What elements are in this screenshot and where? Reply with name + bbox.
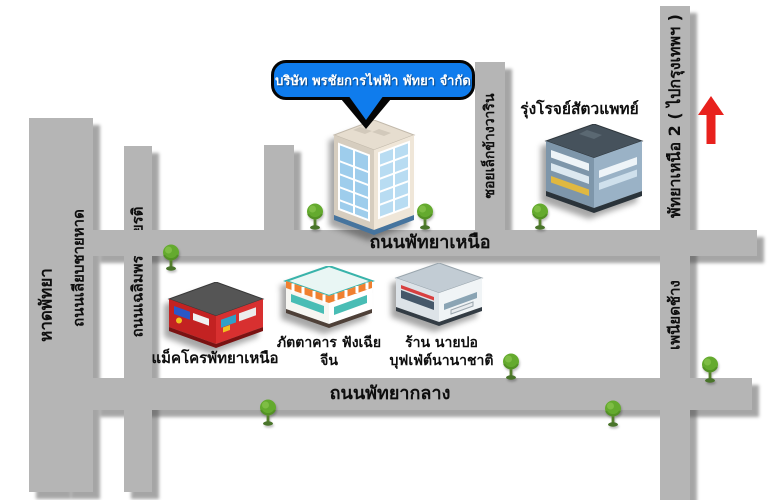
tree-icon xyxy=(161,244,181,275)
buffet-label-line1: ร้าน นายปอ xyxy=(384,334,499,352)
tree-icon xyxy=(603,400,623,431)
callout-tail xyxy=(348,95,384,120)
chaloem-phrakiat-road: ถนนเฉลิมพระเกียรติ xyxy=(124,146,152,492)
central-pattaya-road: ถนนพัทยากลาง xyxy=(93,378,752,410)
pattaya-map: หาดพัทยา ถนนเลียบชายหาด ถนนเฉลิมพระเกียร… xyxy=(0,0,784,500)
buffet-label: ร้าน นายปอ บุฟเฟ่ต์นานาชาติ xyxy=(384,334,499,370)
buffet-building-icon xyxy=(393,263,485,336)
tree-icon xyxy=(700,356,720,387)
stub-road xyxy=(264,145,294,230)
office-building-icon xyxy=(332,120,416,240)
tree-icon xyxy=(258,399,278,430)
tree-icon xyxy=(530,203,550,234)
beach-strip: หาดพัทยา xyxy=(29,118,64,492)
north-pattaya-2-road: พัทยาเหนือ 2 ( ไปกรุงเทพฯ ) เพนียดช้าง xyxy=(660,6,690,500)
callout-bubble: บริษัท พรชัยการไฟฟ้า พัทยา จำกัด xyxy=(271,60,475,100)
chaloem-phrakiat-road-label: ถนนเฉลิมพระเกียรติ xyxy=(131,207,146,338)
restaurant-building-icon xyxy=(283,266,375,338)
tree-icon xyxy=(415,203,435,234)
central-pattaya-road-label: ถนนพัทยากลาง xyxy=(330,385,451,403)
tree-icon xyxy=(501,353,521,384)
north-arrow-icon xyxy=(698,96,724,148)
callout-label: บริษัท พรชัยการไฟฟ้า พัทยา จำกัด xyxy=(275,70,471,91)
soi-lek-khang-warin-road: ซอยเล็กข้างวาริน xyxy=(475,62,505,230)
vet-building-icon xyxy=(544,124,644,222)
north-pattaya-2-label: พัทยาเหนือ 2 ( ไปกรุงเทพฯ ) xyxy=(667,14,683,218)
restaurant-label: ภัตตาคาร ฟังเฉีย จีน xyxy=(274,334,384,370)
buffet-label-line2: บุฟเฟ่ต์นานาชาติ xyxy=(384,352,499,370)
vet-clinic-label: รุ่งโรจย์สัตวแพทย์ xyxy=(512,99,647,119)
soi-lek-khang-warin-label: ซอยเล็กข้างวาริน xyxy=(483,93,497,198)
beach-label: หาดพัทยา xyxy=(38,268,55,342)
restaurant-label-line1: ภัตตาคาร ฟังเฉีย xyxy=(274,334,384,352)
beach-road-label: ถนนเลียบชายหาด xyxy=(71,209,86,327)
beach-road: ถนนเลียบชายหาด xyxy=(64,118,93,492)
makro-label: แม็คโครพัทยาเหนือ xyxy=(145,349,285,369)
makro-building-icon xyxy=(166,282,266,358)
restaurant-label-line2: จีน xyxy=(274,352,384,370)
tree-icon xyxy=(305,203,325,234)
phaniat-chang-label: เพนียดช้าง xyxy=(668,280,683,350)
